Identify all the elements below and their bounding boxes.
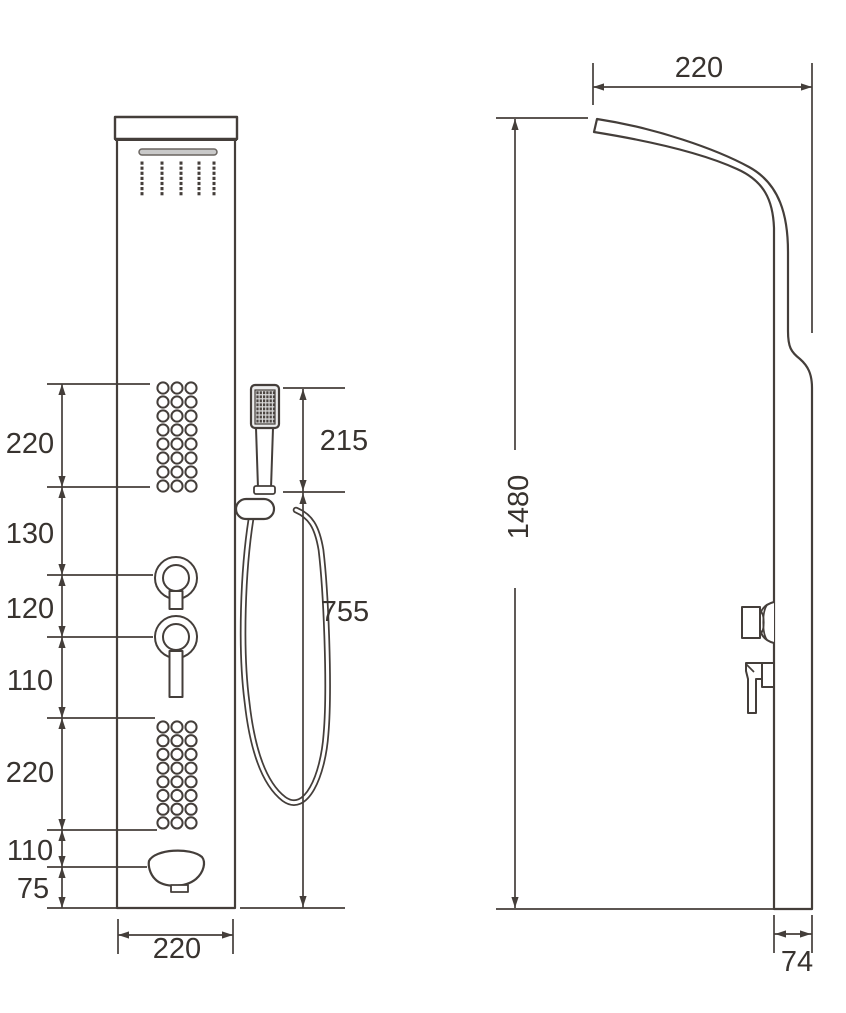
rain-dot	[180, 162, 183, 165]
arrowhead	[58, 830, 65, 841]
nozzle-dot	[260, 408, 262, 411]
rain-dot	[198, 167, 201, 170]
arrowhead	[299, 389, 306, 400]
nozzle-dot	[256, 408, 258, 411]
nozzle-dot	[273, 416, 275, 419]
rain-dot	[213, 177, 216, 180]
arrowhead	[58, 476, 65, 487]
arrowhead	[511, 897, 518, 908]
nozzle-dot	[273, 408, 275, 411]
dim-label-side-depth: 74	[781, 946, 813, 978]
nozzle-dot	[270, 412, 272, 415]
rain-dot	[198, 187, 201, 190]
nozzle-dot	[273, 420, 275, 423]
rain-dot	[213, 167, 216, 170]
dim-label-front-left-6: 75	[17, 873, 49, 905]
arrowhead	[511, 119, 518, 130]
nozzle-dot	[260, 395, 262, 398]
nozzle-dot	[273, 395, 275, 398]
nozzle-dot	[266, 399, 268, 402]
side-view: 220 1480 74	[496, 52, 813, 978]
nozzle-dot	[270, 403, 272, 406]
nozzle-dot	[256, 403, 258, 406]
nozzle-dot	[256, 412, 258, 415]
rain-dot	[198, 177, 201, 180]
side-profile	[594, 119, 812, 909]
rain-dot	[141, 192, 144, 195]
side-knob-head	[742, 607, 760, 638]
rain-dot	[198, 182, 201, 185]
arrowhead	[775, 930, 786, 937]
nozzle-dot	[266, 395, 268, 398]
nozzle-dot	[263, 408, 265, 411]
rain-dot	[213, 187, 216, 190]
handshower-face	[255, 390, 275, 424]
knob-handle	[170, 591, 183, 609]
nozzle-dot	[260, 399, 262, 402]
shower-hose	[243, 510, 328, 803]
nozzle-dot	[266, 408, 268, 411]
rain-dot	[141, 187, 144, 190]
arrowhead	[299, 493, 306, 504]
rain-dot	[198, 162, 201, 165]
dim-label-front-left-0: 220	[6, 428, 54, 460]
rain-dot	[141, 162, 144, 165]
arrowhead	[58, 626, 65, 637]
dim-label-side-top: 220	[675, 52, 723, 84]
spout-outlet	[171, 885, 188, 892]
side-lever-handle	[746, 663, 762, 713]
arrowhead	[801, 83, 812, 90]
arrowhead	[800, 930, 811, 937]
technical-drawing-page: 220 130 120 110 220 110 75 215 755 220	[0, 0, 846, 1013]
dim-label-front-left-2: 120	[6, 593, 54, 625]
rain-dot	[161, 182, 164, 185]
nozzle-dot	[256, 399, 258, 402]
dim-label-front-left-3: 110	[7, 665, 53, 697]
nozzle-dot	[266, 391, 268, 394]
arrowhead	[58, 564, 65, 575]
rain-dot	[161, 187, 164, 190]
dim-label-front-width: 220	[153, 933, 201, 965]
rain-dot	[198, 172, 201, 175]
rain-dot	[180, 172, 183, 175]
rain-dot	[161, 177, 164, 180]
rain-slot	[139, 149, 217, 155]
rain-dot	[161, 172, 164, 175]
handshower-collar	[254, 486, 275, 494]
rain-dot	[180, 192, 183, 195]
arrowhead	[58, 718, 65, 729]
nozzle-dot	[270, 399, 272, 402]
arrowhead	[299, 480, 306, 491]
nozzle-dot	[273, 399, 275, 402]
spout-bowl	[149, 851, 204, 886]
nozzle-dot	[273, 391, 275, 394]
arrowhead	[593, 83, 604, 90]
nozzle-dot	[263, 395, 265, 398]
rain-dot	[198, 192, 201, 195]
arrowhead	[222, 931, 233, 938]
arrowhead	[58, 637, 65, 648]
arrowhead	[58, 867, 65, 878]
nozzle-dot	[263, 416, 265, 419]
arrowhead	[58, 707, 65, 718]
arrowhead	[58, 819, 65, 830]
rain-dot	[161, 192, 164, 195]
nozzle-dot	[256, 416, 258, 419]
nozzle-dot	[266, 412, 268, 415]
nozzle-dot	[270, 420, 272, 423]
rain-dot	[141, 172, 144, 175]
dim-label-front-left-1: 130	[6, 518, 54, 550]
dim-label-front-left-5: 110	[7, 835, 53, 867]
nozzle-dot	[263, 391, 265, 394]
nozzle-dot	[260, 391, 262, 394]
nozzle-dot	[260, 420, 262, 423]
side-lever-base	[762, 663, 774, 687]
nozzle-dot	[263, 420, 265, 423]
front-panel-body	[117, 139, 235, 908]
dim-label-front-left-4: 220	[6, 757, 54, 789]
nozzle-dot	[273, 412, 275, 415]
shower-panel-dimension-drawing: 220 130 120 110 220 110 75 215 755 220	[0, 0, 846, 1013]
nozzle-dot	[256, 420, 258, 423]
nozzle-dot	[256, 395, 258, 398]
rain-dot	[180, 187, 183, 190]
dim-label-side-height: 1480	[503, 475, 535, 540]
rain-dot	[141, 182, 144, 185]
handshower-handle	[256, 428, 273, 488]
rain-dot	[213, 162, 216, 165]
rain-dot	[180, 167, 183, 170]
side-lever	[746, 663, 774, 713]
arrowhead	[299, 896, 306, 907]
front-panel-top-cap	[115, 117, 237, 139]
hand-shower	[236, 385, 328, 803]
arrowhead	[58, 384, 65, 395]
arrowhead	[118, 931, 129, 938]
nozzle-dot	[260, 416, 262, 419]
nozzle-dot	[270, 391, 272, 394]
nozzle-dot	[260, 403, 262, 406]
rain-dot	[141, 177, 144, 180]
side-knob-hub	[759, 602, 774, 643]
side-knob	[742, 602, 774, 643]
arrowhead	[58, 856, 65, 867]
handshower-holder	[236, 499, 274, 519]
arrowhead	[58, 487, 65, 498]
dim-label-handshower-height: 215	[320, 425, 368, 457]
dim-label-hose-length: 755	[321, 596, 369, 628]
nozzle-dot	[273, 403, 275, 406]
rain-dot	[141, 167, 144, 170]
nozzle-dot	[263, 399, 265, 402]
nozzle-dot	[266, 416, 268, 419]
nozzle-dot	[263, 403, 265, 406]
nozzle-dot	[266, 420, 268, 423]
nozzle-dot	[263, 412, 265, 415]
rain-dot	[161, 162, 164, 165]
nozzle-dot	[270, 395, 272, 398]
nozzle-dot	[270, 416, 272, 419]
nozzle-dot	[270, 408, 272, 411]
arrowhead	[58, 897, 65, 908]
nozzle-dot	[256, 391, 258, 394]
nozzle-dot	[266, 403, 268, 406]
rain-dot	[180, 177, 183, 180]
nozzle-dot	[260, 412, 262, 415]
rain-dot	[161, 167, 164, 170]
rain-dot	[180, 182, 183, 185]
knob-lever	[170, 651, 183, 697]
arrowhead	[58, 575, 65, 586]
rain-dot	[213, 172, 216, 175]
rain-dot	[213, 192, 216, 195]
rain-dot	[213, 182, 216, 185]
